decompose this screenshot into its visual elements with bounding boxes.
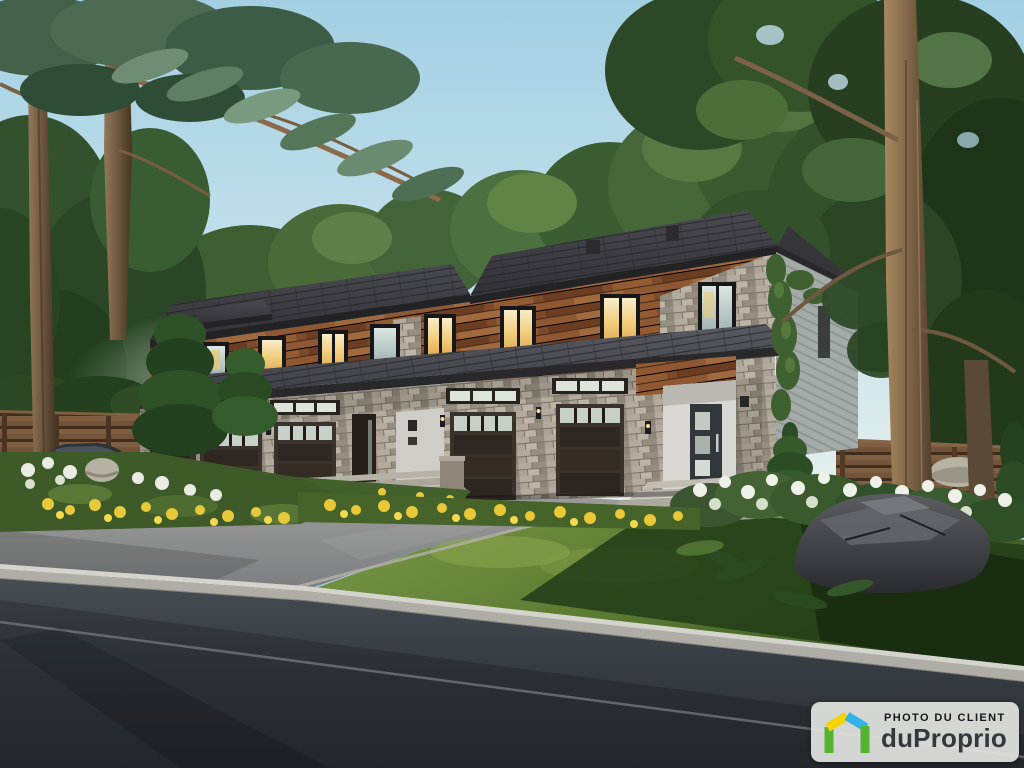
chimney [666, 226, 679, 241]
chimney [586, 240, 600, 254]
entry-door-right [690, 404, 722, 490]
small-boulder [85, 458, 119, 482]
duproprio-logo-icon [822, 711, 872, 753]
watermark-brand: duProprio [881, 725, 1007, 751]
watermark-badge: PHOTO DU CLIENT duProprio [811, 702, 1019, 762]
rendering-photo: PHOTO DU CLIENT duProprio [0, 0, 1024, 768]
scene-canvas [0, 0, 1024, 768]
